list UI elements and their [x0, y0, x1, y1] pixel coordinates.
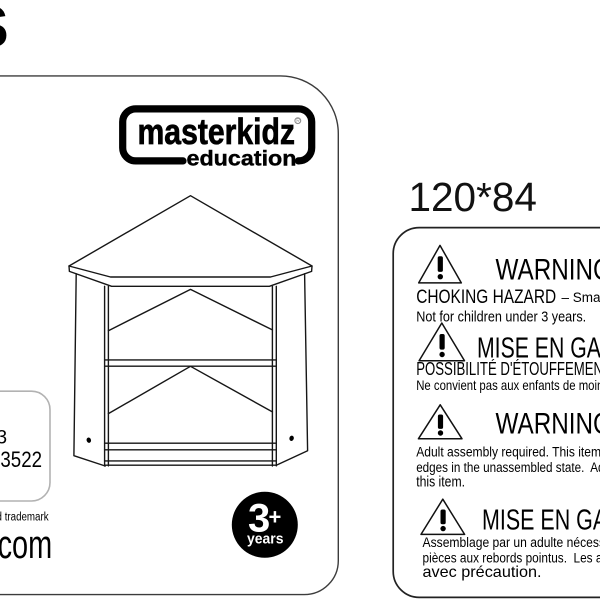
svg-text:masterkidz: masterkidz: [138, 111, 296, 152]
svg-text:CHOKING HAZARD: CHOKING HAZARD: [416, 287, 556, 308]
svg-text:WARNING: WARNING: [496, 408, 600, 441]
svg-text:MISE EN GARDE: MISE EN GARDE: [482, 504, 600, 536]
svg-text:Ne convient pas aux enfants de: Ne convient pas aux enfants de moins de …: [416, 377, 600, 393]
svg-text:S: S: [0, 0, 9, 60]
svg-text:years: years: [247, 531, 284, 548]
svg-text:+: +: [269, 505, 282, 530]
svg-text:23522: 23522: [0, 447, 42, 472]
svg-text:Adult assembly required. This: Adult assembly required. This item conta…: [416, 445, 600, 460]
svg-text:3: 3: [0, 428, 7, 449]
svg-text:– Small parts.: – Small parts.: [562, 290, 600, 305]
svg-text:registered trademark: registered trademark: [0, 512, 49, 524]
svg-text:Assemblage par un adulte néces: Assemblage par un adulte nécessaire. Cet…: [423, 535, 600, 550]
svg-text:120*84: 120*84: [409, 174, 537, 220]
svg-text:avec précaution.: avec précaution.: [423, 564, 542, 581]
svg-text:this item.: this item.: [416, 475, 465, 491]
svg-text:dz.com: dz.com: [0, 523, 52, 567]
svg-text:edges in the unassembled state: edges in the unassembled state. Adult ca…: [416, 460, 600, 475]
svg-text:education: education: [187, 147, 297, 170]
svg-text:R: R: [296, 119, 300, 125]
svg-text:WARNING: WARNING: [496, 254, 600, 287]
